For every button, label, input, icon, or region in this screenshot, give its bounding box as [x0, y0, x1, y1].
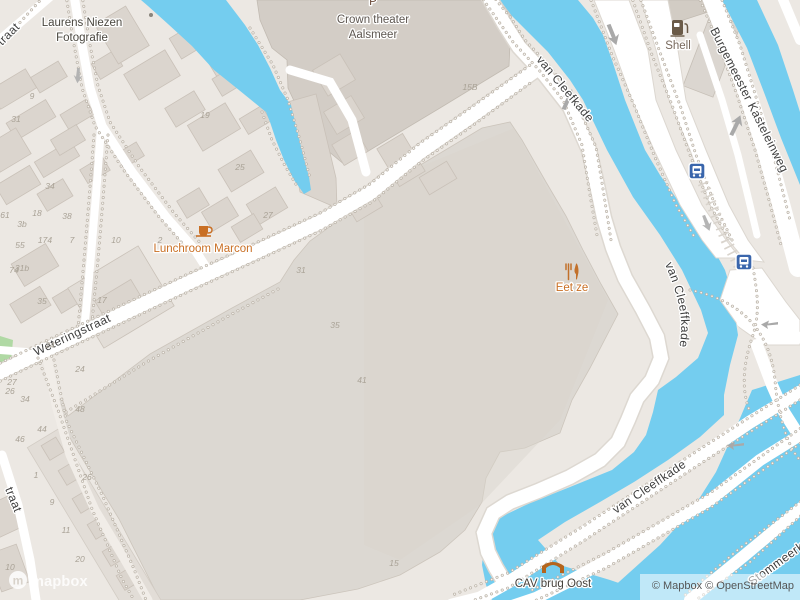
- svg-text:9: 9: [50, 497, 55, 507]
- svg-text:9: 9: [30, 91, 35, 101]
- svg-text:Aalsmeer: Aalsmeer: [349, 29, 398, 41]
- svg-text:46: 46: [15, 434, 25, 444]
- svg-text:© Mapbox © OpenStreetMap: © Mapbox © OpenStreetMap: [652, 580, 794, 592]
- svg-text:41: 41: [357, 375, 367, 385]
- svg-text:35: 35: [37, 296, 47, 306]
- svg-text:174: 174: [38, 235, 52, 245]
- svg-text:20: 20: [74, 554, 85, 564]
- svg-text:Shell: Shell: [665, 40, 691, 52]
- svg-text:61: 61: [0, 210, 10, 220]
- svg-text:11: 11: [62, 525, 71, 535]
- svg-text:44: 44: [37, 424, 47, 434]
- svg-text:24: 24: [44, 340, 55, 350]
- svg-text:7: 7: [70, 235, 75, 245]
- svg-text:3b: 3b: [17, 219, 27, 229]
- svg-text:31b: 31b: [15, 263, 29, 273]
- svg-text:18: 18: [32, 208, 42, 218]
- svg-text:10: 10: [111, 235, 121, 245]
- svg-text:Eet ze: Eet ze: [556, 282, 589, 294]
- svg-text:35: 35: [330, 320, 340, 330]
- svg-text:Crown theater: Crown theater: [337, 14, 409, 26]
- svg-text:P: P: [369, 0, 377, 8]
- svg-text:10: 10: [5, 562, 15, 572]
- svg-text:15: 15: [389, 558, 399, 568]
- svg-text:34: 34: [45, 181, 55, 191]
- svg-text:Lunchroom Marcon: Lunchroom Marcon: [153, 243, 252, 255]
- svg-text:m: m: [13, 574, 24, 588]
- svg-text:mapbox: mapbox: [31, 574, 88, 590]
- svg-text:27: 27: [262, 210, 273, 220]
- svg-text:Fotografie: Fotografie: [56, 32, 108, 44]
- svg-text:17: 17: [97, 295, 107, 305]
- svg-text:15B: 15B: [462, 82, 477, 92]
- svg-text:1: 1: [34, 470, 39, 480]
- svg-text:26: 26: [4, 386, 15, 396]
- svg-text:55: 55: [15, 240, 25, 250]
- svg-text:CAV brug Oost: CAV brug Oost: [515, 578, 592, 590]
- svg-text:26: 26: [81, 472, 92, 482]
- svg-text:31: 31: [11, 114, 21, 124]
- svg-text:24: 24: [74, 364, 85, 374]
- svg-text:Laurens Niezen: Laurens Niezen: [42, 17, 123, 29]
- svg-text:31: 31: [296, 265, 306, 275]
- svg-text:38: 38: [62, 211, 72, 221]
- svg-text:25: 25: [234, 162, 245, 172]
- svg-text:34: 34: [20, 394, 30, 404]
- svg-text:48: 48: [75, 404, 85, 414]
- svg-text:19: 19: [200, 110, 210, 120]
